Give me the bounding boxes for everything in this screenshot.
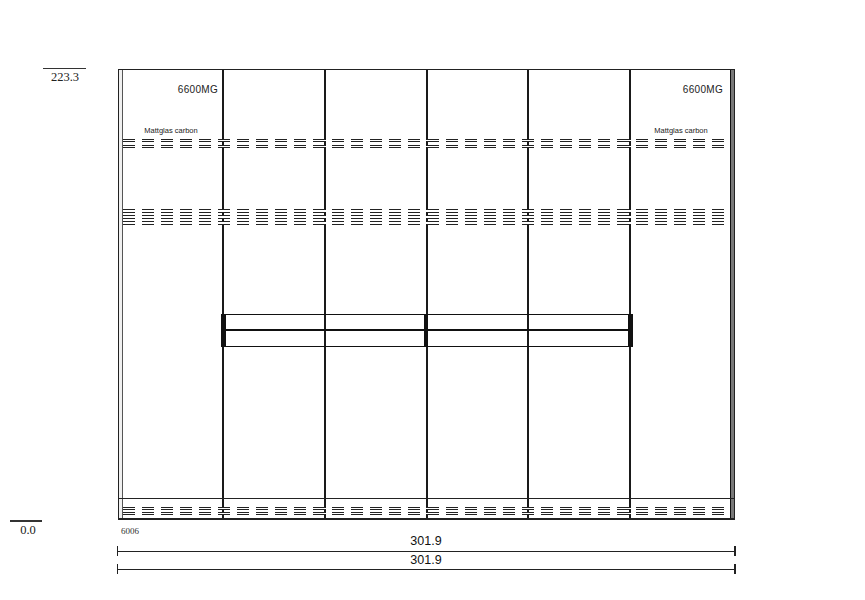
wardrobe-outline: [118, 69, 735, 520]
shelf-dashed-line: [123, 209, 729, 213]
shelf-dashed-line: [123, 221, 729, 225]
handle-rail-cap-middle: [424, 315, 429, 346]
shelf-dashed-line: [123, 145, 729, 148]
door-model-label-right: 6600MG: [632, 84, 730, 95]
cad-elevation-canvas: 223.3 0.0 6600MG 6600MG Mattglas carbon: [0, 0, 865, 600]
door-divider-5: [629, 70, 631, 518]
door-bottom-line: [118, 498, 735, 499]
width-dimension-label-lower: 301.9: [391, 553, 461, 567]
level-line-top: [43, 68, 86, 70]
width-dimension-label-upper: 301.9: [391, 534, 461, 548]
plinth-dashed-line: [123, 512, 729, 515]
level-label-top: 223.3: [42, 70, 88, 85]
door-divider-4: [527, 70, 529, 518]
plinth-code-label: 6006: [121, 526, 139, 536]
door-finish-label-right: Mattglas carbon: [630, 126, 732, 135]
plinth-dashed-line: [123, 507, 729, 510]
dimension-tick: [734, 564, 736, 574]
level-label-bottom: 0.0: [8, 523, 48, 538]
side-panel-right: [730, 70, 736, 518]
door-divider-1: [222, 70, 224, 518]
width-dimension-line-lower: [117, 569, 735, 570]
handle-rail-cap-right: [628, 315, 632, 346]
door-finish-label-left: Mattglas carbon: [119, 126, 223, 135]
shelf-dashed-line: [123, 139, 729, 142]
door-model-label-left: 6600MG: [118, 84, 222, 95]
handle-rail-cap-left: [222, 315, 226, 346]
door-divider-3: [426, 70, 428, 518]
handle-rail: [221, 314, 633, 347]
side-panel-left: [118, 70, 123, 518]
dimension-tick: [117, 564, 119, 574]
dimension-tick: [117, 546, 119, 556]
door-divider-2: [324, 70, 326, 518]
level-line-bottom: [10, 520, 42, 522]
dimension-tick: [734, 546, 736, 556]
shelf-dashed-line: [123, 215, 729, 219]
